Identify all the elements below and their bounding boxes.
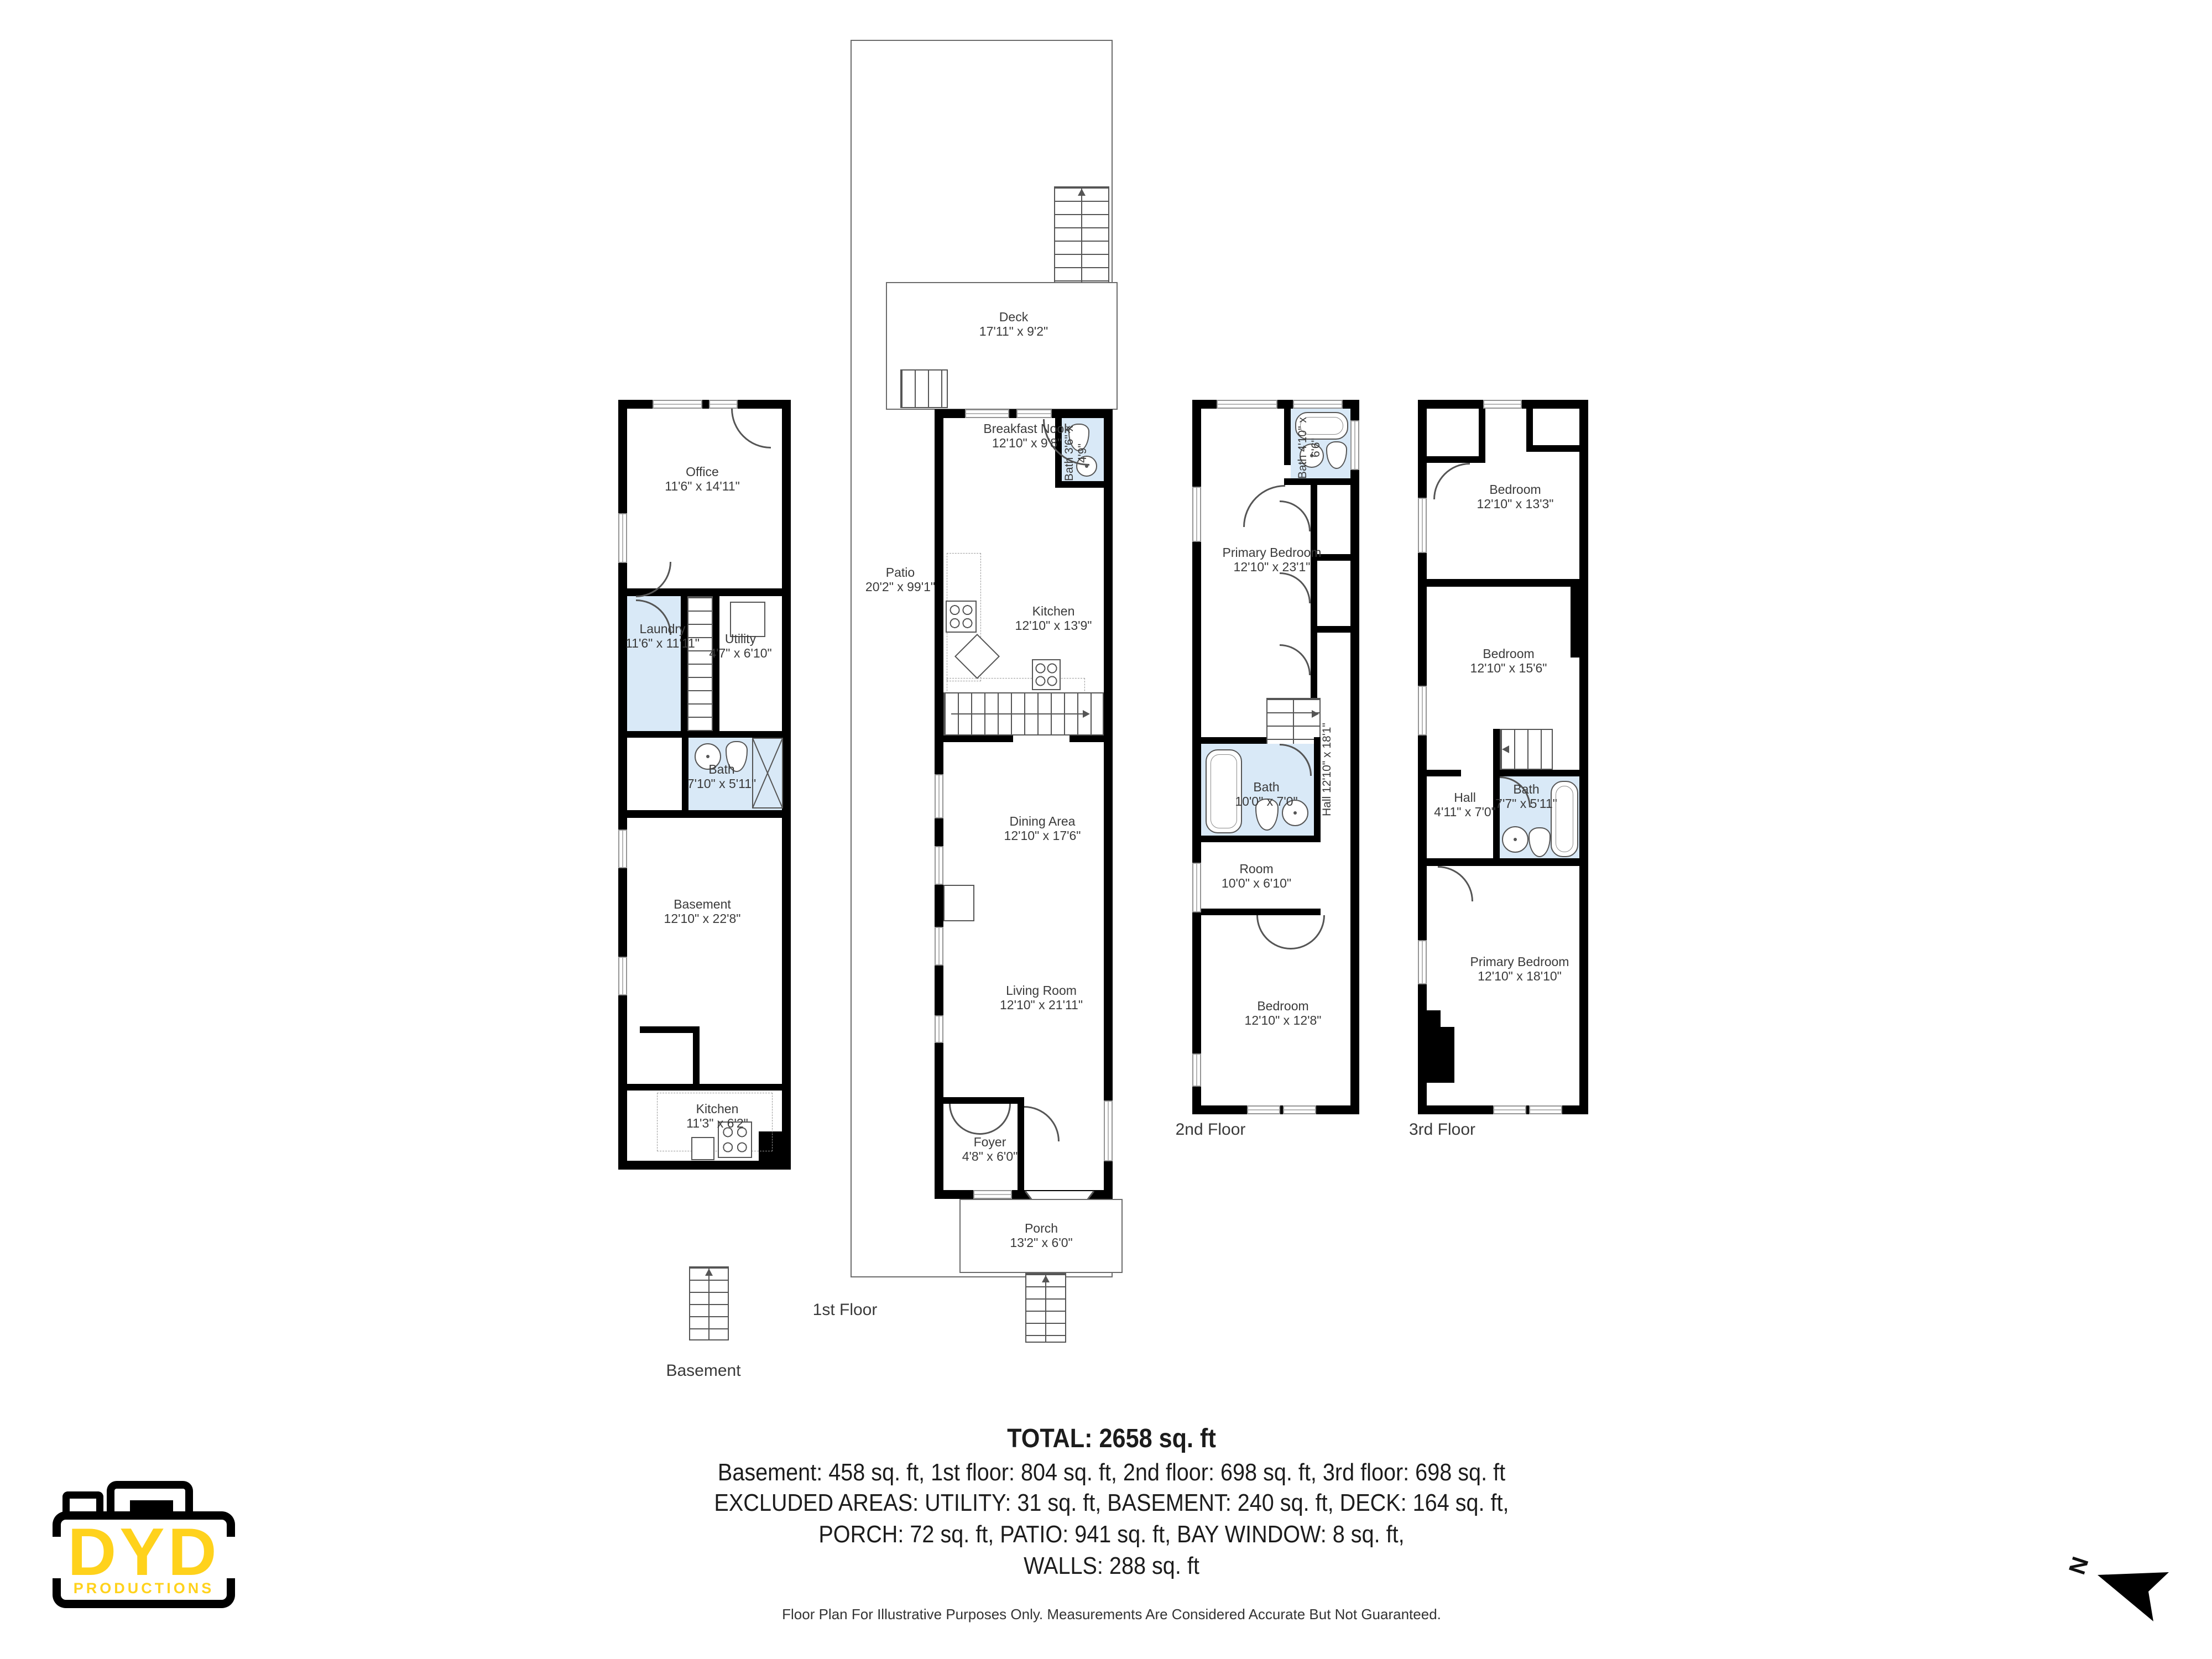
basement-stairs — [687, 596, 713, 731]
wall — [627, 1084, 782, 1091]
deck-stairs — [900, 369, 948, 408]
room-name: Kitchen — [998, 604, 1109, 618]
room-label-deck: Deck 17'11" x 9'2" — [958, 310, 1069, 338]
window — [709, 400, 738, 409]
window — [1192, 1053, 1201, 1087]
logo-subtitle: PRODUCTIONS — [53, 1580, 235, 1596]
room-label-foyer: Foyer 4'8" x 6'0" — [935, 1135, 1045, 1164]
exterior-stairs — [689, 1266, 729, 1340]
room-label-hall: Hall 12'10" x 18'1" — [1321, 714, 1348, 825]
window — [1418, 498, 1427, 553]
room-name: Office — [647, 465, 758, 479]
room-label-primary: Primary Bedroom 12'10" x 23'1" — [1217, 545, 1327, 574]
room-label-living: Living Room 12'10" x 21'11" — [986, 983, 1097, 1012]
room-label-office: Office 11'6" x 14'11" — [647, 465, 758, 493]
room-dims: 7'7" x 5'11" — [1471, 796, 1582, 811]
sink-icon — [1502, 826, 1528, 853]
room-label-bath-mid: Bath 10'0" x 7'0" — [1211, 780, 1322, 808]
room-label-laundry: Laundry 11'6" x 11'11" — [607, 622, 718, 650]
room-dims: 11'6" x 11'11" — [607, 636, 718, 650]
window — [618, 830, 627, 868]
room-name: Bedroom — [1228, 999, 1338, 1013]
room-name: Bath — [666, 762, 777, 776]
floor-caption-basement: Basement — [648, 1361, 759, 1380]
stairs-arrow — [1083, 710, 1090, 718]
wall — [1427, 858, 1579, 866]
floor-caption-third: 3rd Floor — [1387, 1120, 1498, 1139]
camera-bump-icon — [62, 1491, 103, 1514]
window — [935, 1015, 943, 1043]
wall — [713, 596, 719, 731]
room-name: Living Room — [986, 983, 1097, 998]
wall-block — [1571, 587, 1588, 658]
room-dims: 13'2" x 6'0" — [986, 1235, 1097, 1250]
room-name: Bedroom — [1453, 646, 1564, 661]
wall — [1526, 409, 1533, 452]
window — [1217, 400, 1277, 409]
kitchen-sink-icon — [691, 1137, 714, 1160]
room-label-kitchen: Kitchen 11'3" x 6'2" — [662, 1102, 773, 1130]
wall — [1311, 485, 1317, 707]
window — [1283, 1105, 1316, 1114]
window — [973, 1190, 1012, 1199]
room-name: Bath — [1211, 780, 1322, 794]
wall — [681, 596, 687, 731]
room-dims: 10'0" x 6'10" — [1201, 876, 1312, 890]
window — [1350, 420, 1359, 470]
window — [1104, 1100, 1113, 1161]
room-name: Patio — [845, 565, 956, 580]
wall — [1427, 579, 1579, 587]
floor-area — [943, 418, 1104, 1190]
wall — [640, 1026, 700, 1033]
room-label-bedroom: Bedroom 12'10" x 12'8" — [1228, 999, 1338, 1027]
room-dims: 11'6" x 14'11" — [647, 479, 758, 493]
wall — [693, 1026, 700, 1084]
window — [1529, 1105, 1562, 1114]
fireplace — [943, 885, 974, 921]
window — [1418, 686, 1427, 735]
wall — [1427, 456, 1485, 463]
window — [1483, 400, 1522, 409]
stairs-up-arrow — [1042, 1275, 1050, 1282]
stairs-arrow — [1502, 745, 1509, 753]
window — [1493, 1105, 1526, 1114]
logo-name: DYD — [47, 1524, 241, 1579]
wall — [627, 731, 782, 738]
window — [965, 409, 1009, 418]
room-name: Bedroom — [1460, 482, 1571, 497]
wall — [1479, 409, 1485, 456]
room-dims: 17'11" x 9'2" — [958, 324, 1069, 338]
wall — [1201, 737, 1266, 744]
room-dims: 20'2" x 99'1" — [845, 580, 956, 594]
room-name: Kitchen — [662, 1102, 773, 1116]
room-name: Laundry — [607, 622, 718, 636]
stairs-direction-line — [951, 713, 1084, 714]
room-dims: 12'10" x 12'8" — [1228, 1013, 1338, 1027]
room-name: Porch — [986, 1221, 1097, 1235]
wall — [1317, 626, 1350, 633]
room-dims: 12'10" x 15'6" — [1453, 661, 1564, 675]
room-name: Room — [1201, 862, 1312, 876]
window — [1247, 1105, 1280, 1114]
window — [935, 927, 943, 966]
room-name: Bath — [1296, 455, 1309, 479]
stairs-up-arrow — [705, 1269, 713, 1276]
room-label-bath-top: Bath 4'10" x 6'6" — [1296, 416, 1323, 480]
floor-caption-first: 1st Floor — [790, 1301, 900, 1319]
summary-excluded-2: PORCH: 72 sq. ft, PATIO: 941 sq. ft, BAY… — [614, 1522, 1609, 1547]
wall — [1070, 735, 1104, 742]
room-label-bath-small: Bath 3'6" x 4'9" — [1063, 421, 1089, 486]
room-label-dining: Dining Area 12'10" x 17'6" — [987, 814, 1098, 843]
room-label-kitchen: Kitchen 12'10" x 13'9" — [998, 604, 1109, 633]
room-name: Bath — [1471, 782, 1582, 796]
window — [653, 400, 702, 409]
room-name: Dining Area — [987, 814, 1098, 828]
window — [935, 774, 943, 818]
front-steps — [1025, 1273, 1066, 1343]
wall — [1493, 770, 1579, 776]
stove-icon — [1032, 659, 1061, 690]
wall — [1533, 445, 1579, 452]
room-dims: 12'10" x 23'1" — [1217, 560, 1327, 574]
room-name: Primary Bedroom — [1217, 545, 1327, 560]
wall — [1427, 770, 1461, 776]
room-dims: 11'3" x 6'2" — [662, 1116, 773, 1130]
upper-exterior-stairs — [1054, 186, 1109, 297]
wall — [1284, 409, 1291, 465]
north-label: N — [2064, 1553, 2094, 1577]
window — [1016, 409, 1052, 418]
room-dims: 10'0" x 7'0" — [1211, 794, 1322, 808]
wall — [1201, 909, 1321, 915]
summary-excluded-1: EXCLUDED AREAS: UTILITY: 31 sq. ft, BASE… — [614, 1491, 1609, 1515]
summary-total: TOTAL: 2658 sq. ft — [614, 1426, 1609, 1452]
room-label-primary: Primary Bedroom 12'10" x 18'10" — [1464, 954, 1575, 983]
room-dims: 12'10" x 18'1" — [1321, 723, 1333, 794]
room-dims: 12'10" x 17'6" — [987, 828, 1098, 843]
disclaimer-text: Floor Plan For Illustrative Purposes Onl… — [559, 1607, 1665, 1621]
room-name: Hall — [1321, 796, 1333, 816]
room-label-basement: Basement 12'10" x 22'8" — [647, 897, 758, 926]
room-name: Primary Bedroom — [1464, 954, 1575, 969]
room-dims: 4'8" x 6'0" — [935, 1149, 1045, 1164]
room-name: Basement — [647, 897, 758, 911]
window — [1293, 400, 1343, 409]
room-dims: 7'10" x 5'11" — [666, 776, 777, 791]
wall-block — [1427, 1027, 1454, 1083]
floorplan-page: { "page": { "background": "#ffffff", "wa… — [0, 0, 2212, 1659]
stove-icon — [946, 601, 977, 633]
wall — [943, 1097, 1024, 1104]
stairs-up-arrow — [1078, 189, 1086, 196]
window — [935, 846, 943, 885]
window — [618, 957, 627, 995]
wall — [943, 735, 1013, 742]
north-arrow: N — [2046, 1543, 2190, 1637]
room-label-bedroom-top: Bedroom 12'10" x 13'3" — [1460, 482, 1571, 511]
window — [1192, 487, 1201, 542]
camera-bar-icon — [130, 1500, 173, 1511]
room-dims: 12'10" x 21'11" — [986, 998, 1097, 1012]
room-dims: 12'10" x 22'8" — [647, 911, 758, 926]
room-name: Foyer — [935, 1135, 1045, 1149]
window — [618, 513, 627, 563]
room-label-bath: Bath 7'7" x 5'11" — [1471, 782, 1582, 811]
wall — [1201, 836, 1321, 842]
north-arrow-dart — [2098, 1572, 2169, 1621]
window — [1192, 863, 1201, 912]
wall — [627, 810, 782, 818]
room-dims: 12'10" x 13'9" — [998, 618, 1109, 633]
room-dims: 12'10" x 13'3" — [1460, 497, 1571, 511]
room-label-room: Room 10'0" x 6'10" — [1201, 862, 1312, 890]
room-dims: 4'10" x 6'6" — [1296, 417, 1322, 457]
summary-floors: Basement: 458 sq. ft, 1st floor: 804 sq.… — [614, 1460, 1609, 1485]
room-dims: 12'10" x 18'10" — [1464, 969, 1575, 983]
room-label-bath: Bath 7'10" x 5'11" — [666, 762, 777, 791]
room-name: Bath — [1063, 457, 1076, 481]
summary-walls: WALLS: 288 sq. ft — [614, 1554, 1609, 1578]
room-label-patio: Patio 20'2" x 99'1" — [845, 565, 956, 594]
room-label-bedroom-mid: Bedroom 12'10" x 15'6" — [1453, 646, 1564, 675]
room-label-porch: Porch 13'2" x 6'0" — [986, 1221, 1097, 1250]
floor-caption-second: 2nd Floor — [1155, 1120, 1266, 1139]
stairs-arrow — [1312, 710, 1319, 718]
room-name: Deck — [958, 310, 1069, 324]
window — [1418, 940, 1427, 984]
